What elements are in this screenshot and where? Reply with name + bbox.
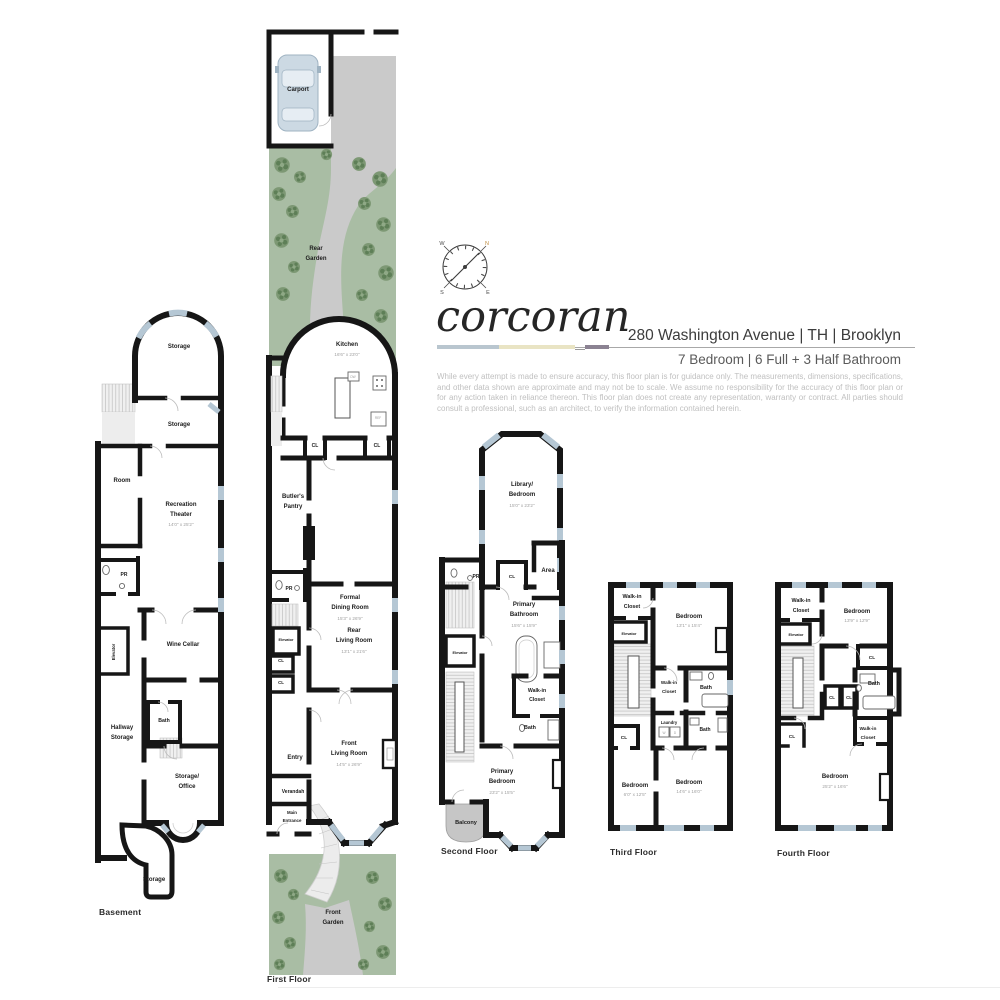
room-label: Walk-in [623, 594, 642, 600]
room-label: Bedroom [489, 779, 515, 785]
bed-bath-summary: 7 Bedroom | 6 Full + 3 Half Bathroom [437, 352, 901, 367]
compass-north-label: N [485, 241, 489, 247]
fourth-floor-plan: Walk-inClosetBedroom13'9" x 12'9"Elevato… [770, 578, 905, 832]
room-label: Storage [111, 735, 134, 741]
room-label: Storage/ [175, 774, 199, 780]
room-dimension-label: 14'6" x 16'0" [676, 789, 702, 794]
room-dimension-label: 6'0" x 12'5" [624, 792, 647, 797]
room-label: PR [286, 586, 293, 592]
room-dimension-label: 15'3" x 26'9" [337, 616, 363, 621]
brand-bar-blue [437, 345, 499, 349]
room-label: Kitchen [336, 342, 358, 348]
room-label: Front [341, 741, 356, 747]
room-label: Storage [168, 422, 191, 428]
room-label: CL [278, 658, 284, 663]
room-label: Pantry [284, 504, 303, 510]
brand-bar-line [575, 345, 585, 350]
room-label: Room [114, 478, 131, 484]
room-dimension-label: 14'0" x 25'2" [168, 522, 194, 527]
room-label: Balcony [455, 820, 478, 826]
room-label: Walk-in [860, 726, 877, 732]
basement-floor-plan: StorageStorageRoomRecreationTheater14'0"… [88, 308, 238, 922]
room-label: Bath [524, 725, 536, 731]
room-label: Living Room [336, 638, 372, 644]
room-label: CL [869, 655, 875, 661]
room-dimension-label: 25'2" x 16'6" [822, 784, 848, 789]
third-floor-plan: Walk-inClosetBedroom13'1" x 15'4"Elevato… [608, 578, 733, 832]
room-label: Hallway [111, 725, 134, 731]
room-label: Primary [491, 769, 514, 775]
room-label: CL [278, 680, 284, 685]
room-label: Bedroom [822, 774, 848, 780]
room-label: Bath [868, 681, 880, 687]
room-label: Bathroom [510, 612, 538, 618]
floorplan-sheet: N W E S corcoran 280 Washington Avenue |… [0, 0, 1000, 1000]
page-bottom-divider [278, 987, 1000, 988]
room-label: Walk-in [661, 680, 677, 685]
room-label: Storage [143, 877, 166, 883]
room-label: Bedroom [622, 783, 648, 789]
room-label: CL [846, 695, 852, 700]
floor-caption-fourth: Fourth Floor [777, 848, 830, 858]
room-label: Bedroom [509, 492, 535, 498]
floor-caption-second: Second Floor [441, 846, 498, 856]
room-label: Entrance [283, 818, 302, 823]
room-label: Rear [347, 628, 361, 634]
room-label: Bath [700, 685, 712, 691]
room-label: Butler's [282, 494, 305, 500]
room-label: Closet [793, 608, 810, 614]
room-dimension-label: 14'5" x 26'9" [336, 762, 362, 767]
room-label: Library/ [511, 482, 533, 488]
brand-color-bar [437, 345, 609, 349]
room-dimension-label: 13'1" x 15'4" [676, 623, 702, 628]
room-label: CL [829, 695, 835, 700]
room-label: Verandah [282, 789, 305, 795]
room-label: CL [789, 734, 795, 740]
room-label: Bedroom [676, 614, 702, 620]
room-label: Entry [287, 755, 303, 761]
floor-caption-third: Third Floor [610, 847, 657, 857]
room-label: CL [374, 443, 381, 449]
room-dimension-label: 13'9" x 12'9" [844, 618, 870, 623]
room-label: Living Room [331, 751, 367, 757]
room-label: Primary [513, 602, 536, 608]
room-label: Garden [322, 920, 343, 926]
room-label: Elevator [279, 638, 295, 642]
room-label: Walk-in [792, 598, 811, 604]
room-dimension-label: DW [350, 375, 355, 379]
room-dimension-label: 16'6" x 23'0" [334, 352, 360, 357]
room-dimension-label: 15'6" x 15'9" [511, 623, 537, 628]
room-label: Storage [168, 344, 191, 350]
disclaimer-text: While every attempt is made to ensure ac… [437, 372, 903, 415]
room-label: Bath [158, 718, 170, 724]
compass-west-label: W [439, 241, 445, 247]
room-label: Closet [529, 697, 545, 703]
room-label: Garden [305, 256, 326, 262]
room-label: Elevator [789, 633, 805, 637]
room-label: PR [473, 574, 480, 580]
first-floor-plan: CarportRearGardenKitchen16'6" x 23'0"DWR… [265, 28, 400, 980]
room-label: Elevator [111, 643, 116, 660]
brand-bar-cream [499, 345, 575, 349]
room-dimension-label: REF [375, 416, 381, 420]
room-label: Closet [624, 604, 641, 610]
brand-bar-gray [585, 345, 609, 349]
room-label: CL [509, 574, 515, 580]
room-label: Dining Room [331, 605, 368, 611]
room-label: Wine Cellar [167, 642, 200, 648]
room-label: PR [121, 572, 128, 578]
room-label: Elevator [622, 632, 638, 636]
room-label: Carport [287, 87, 309, 93]
room-label: Elevator [453, 651, 469, 655]
room-label: Theater [170, 512, 192, 518]
room-dimension-label: W [662, 731, 665, 735]
room-label: Office [178, 784, 196, 790]
room-dimension-label: 13'1" x 21'6" [341, 649, 367, 654]
room-label: Formal [340, 595, 360, 601]
room-label: Closet [861, 735, 876, 741]
second-floor-plan: Library/Bedroom15'0" x 23'2"PRCLAreaPrim… [438, 430, 588, 854]
property-address: 280 Washington Avenue | TH | Brooklyn [437, 327, 901, 345]
room-label: Bedroom [844, 609, 870, 615]
room-label: Closet [662, 689, 677, 694]
room-label: Rear [309, 246, 323, 252]
compass-icon: N W E S [437, 236, 499, 300]
room-dimension-label: 15'0" x 23'2" [509, 503, 535, 508]
room-label: CL [621, 735, 627, 741]
room-label: Walk-in [528, 688, 546, 694]
room-label: Main [287, 810, 297, 815]
room-label: Front [325, 910, 340, 916]
room-label: Laundry [661, 720, 678, 725]
room-label: CL [312, 443, 319, 449]
floor-caption-first: First Floor [267, 974, 311, 984]
room-label: Recreation [165, 502, 196, 508]
room-label: Bedroom [676, 780, 702, 786]
room-label: Bath [699, 727, 710, 733]
room-dimension-label: 23'2" x 15'5" [489, 790, 515, 795]
floor-caption-basement: Basement [99, 907, 141, 917]
room-label: Area [541, 568, 555, 574]
